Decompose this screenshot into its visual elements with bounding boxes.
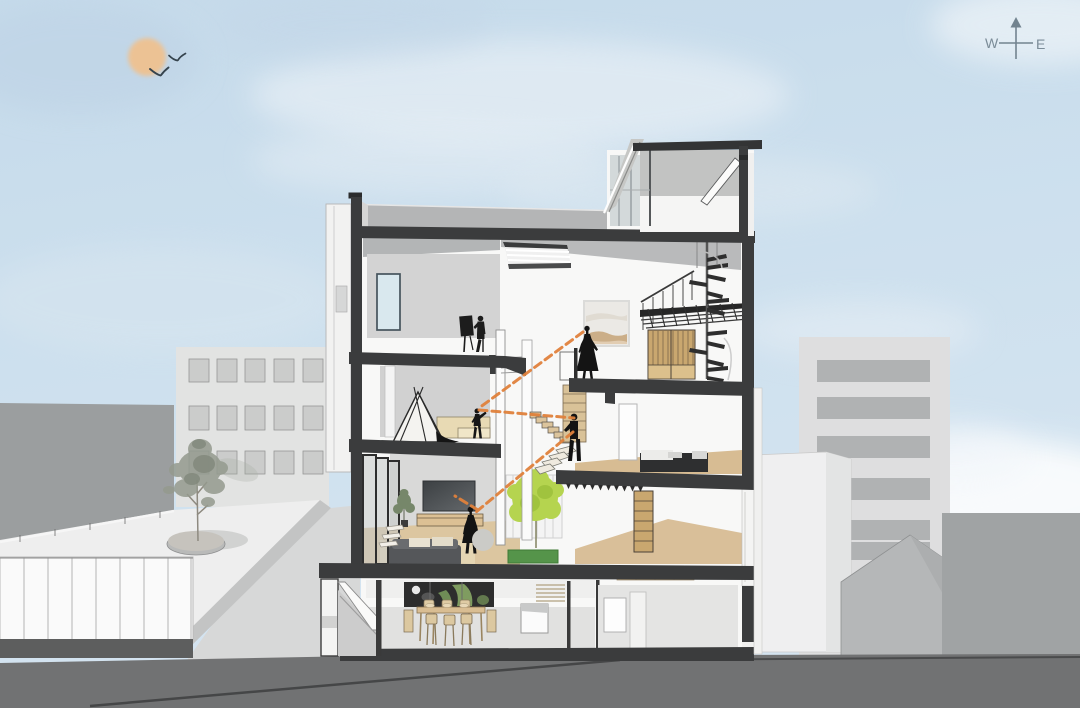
svg-text:E: E <box>1036 36 1045 52</box>
svg-text:W: W <box>985 35 999 51</box>
